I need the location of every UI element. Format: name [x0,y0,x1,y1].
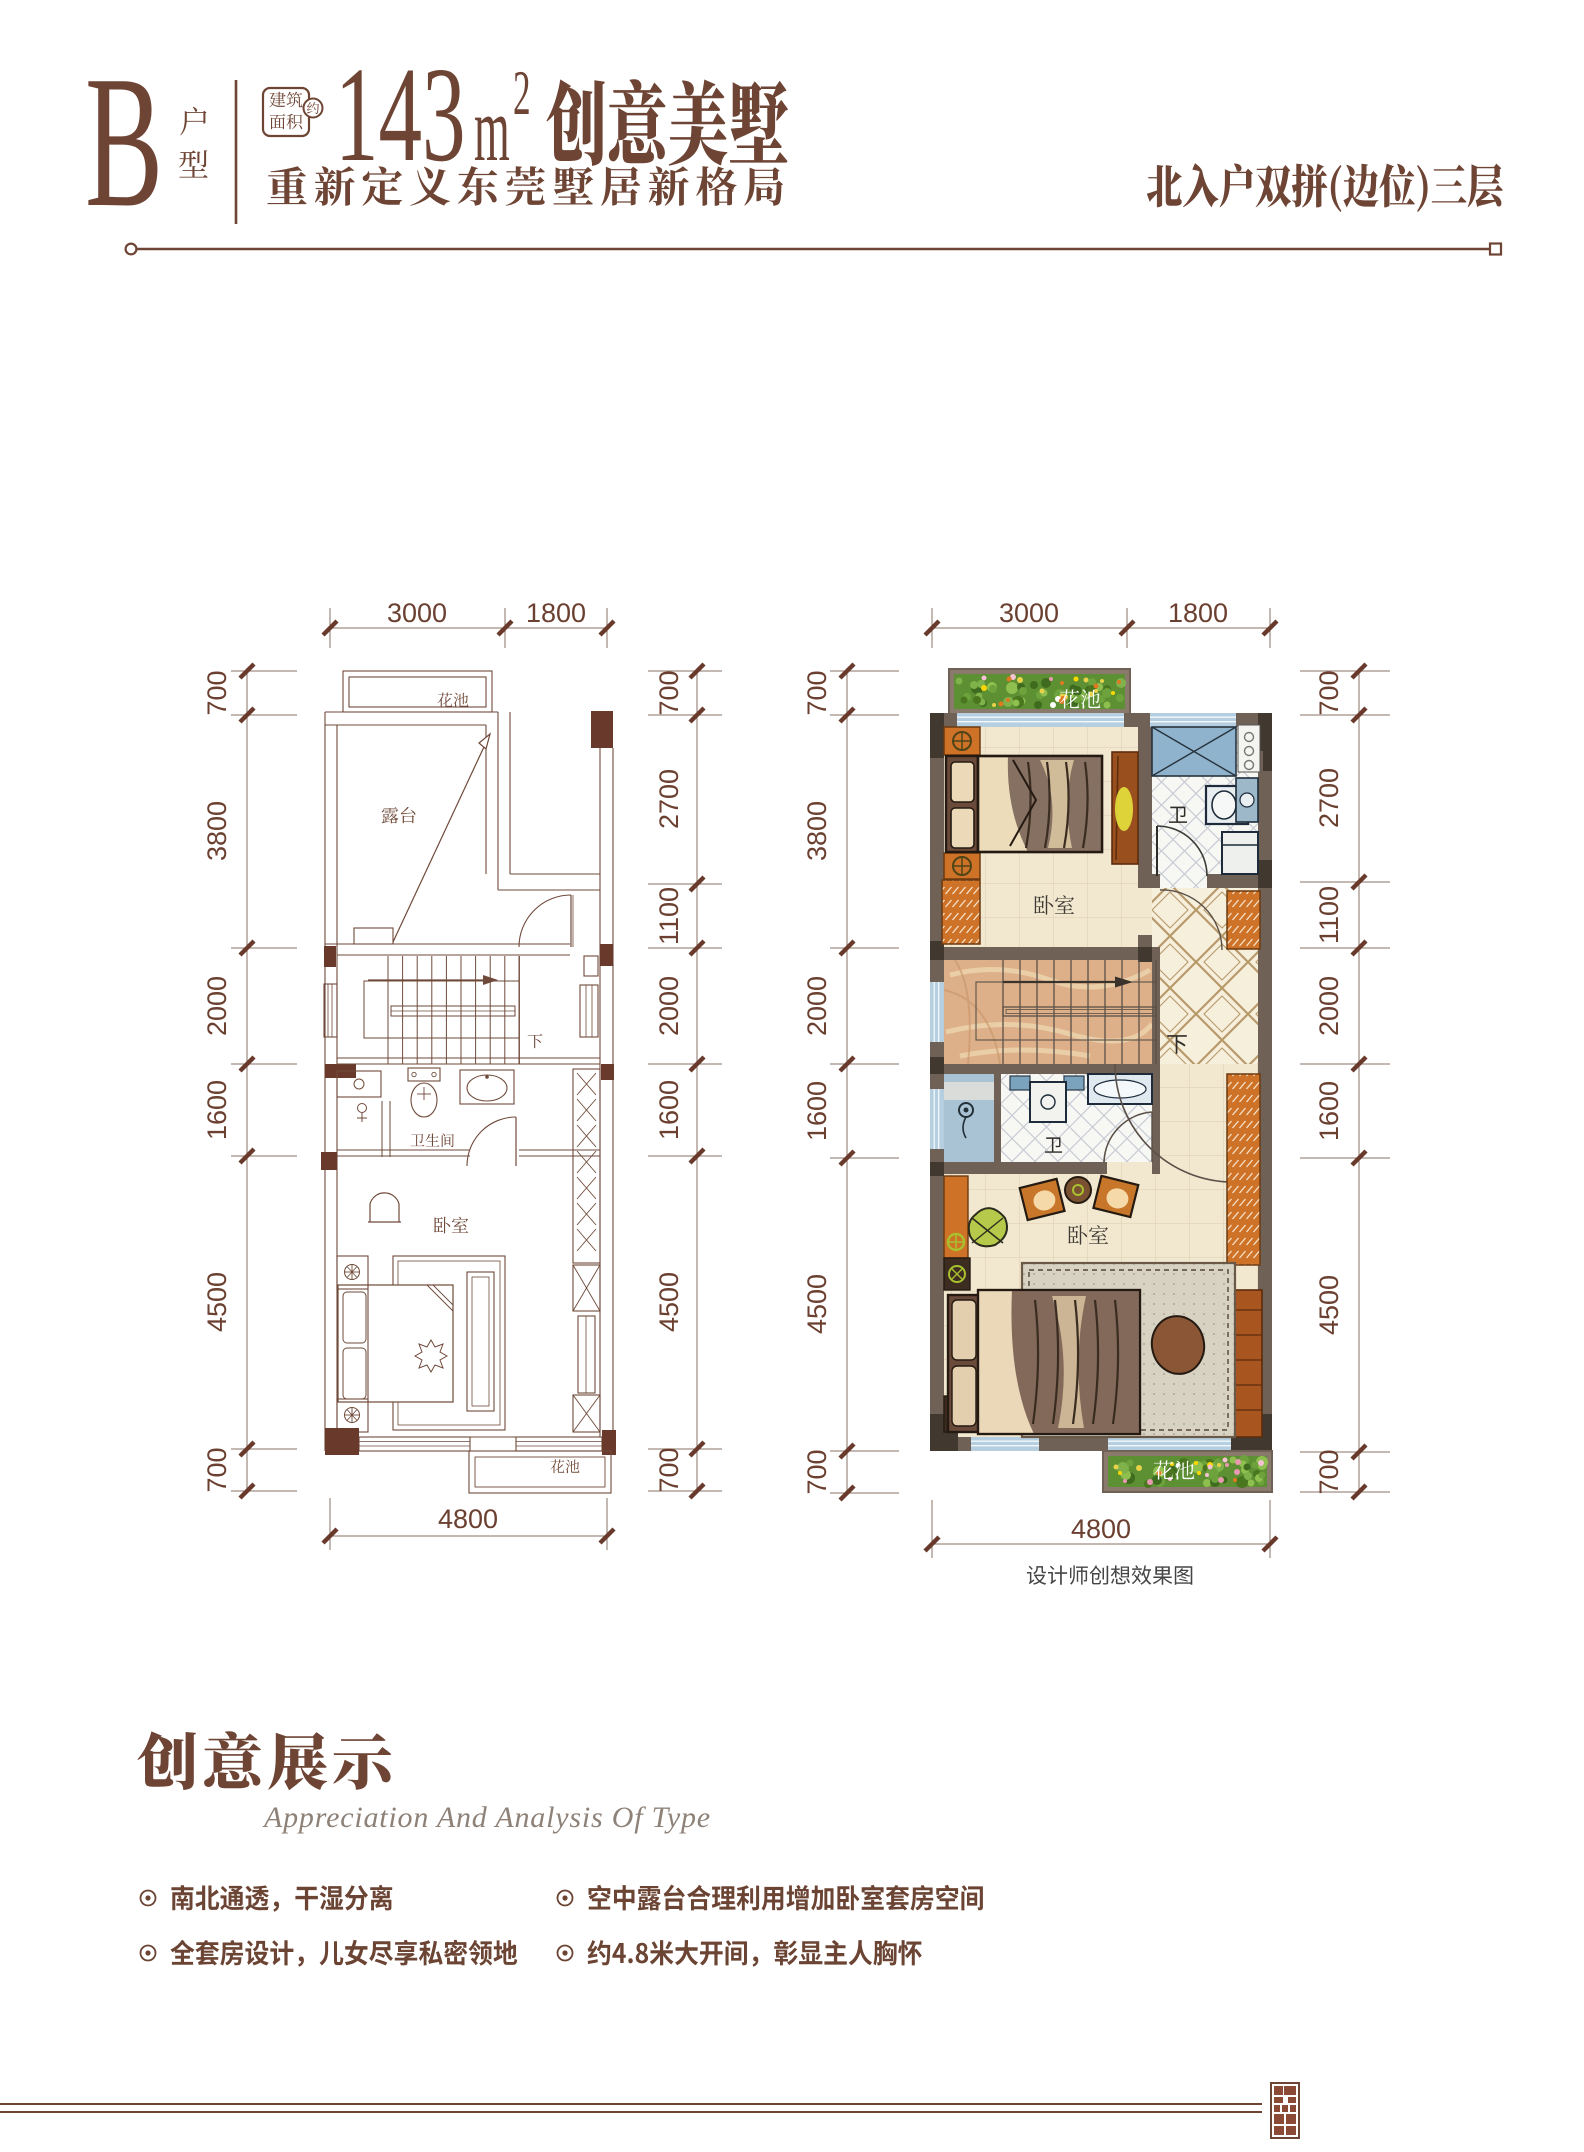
svg-text:2000: 2000 [202,976,232,1036]
svg-text:3800: 3800 [202,801,232,861]
svg-text:1800: 1800 [1168,598,1228,628]
svg-text:2700: 2700 [654,769,684,829]
svg-text:4800: 4800 [1071,1514,1131,1544]
svg-text:143: 143 [335,39,466,190]
svg-text:700: 700 [1314,670,1344,715]
svg-text:4800: 4800 [438,1504,498,1534]
svg-text:4500: 4500 [802,1274,832,1334]
svg-text:3800: 3800 [802,801,832,861]
svg-text:2000: 2000 [654,976,684,1036]
svg-text:4500: 4500 [1314,1275,1344,1335]
svg-text:2000: 2000 [1314,976,1344,1036]
svg-text:2: 2 [513,58,531,129]
svg-text:700: 700 [202,670,232,715]
svg-text:700: 700 [802,670,832,715]
svg-text:1100: 1100 [1314,886,1344,944]
svg-text:700: 700 [1314,1449,1344,1494]
svg-text:1800: 1800 [526,598,586,628]
svg-text:1600: 1600 [654,1080,684,1140]
svg-text:700: 700 [802,1449,832,1494]
svg-text:2000: 2000 [802,976,832,1036]
svg-text:2700: 2700 [1314,768,1344,828]
svg-text:4500: 4500 [202,1272,232,1332]
svg-text:1600: 1600 [202,1080,232,1140]
svg-text:m: m [474,78,510,180]
svg-text:700: 700 [654,670,684,715]
svg-text:3000: 3000 [387,598,447,628]
svg-text:4500: 4500 [654,1272,684,1332]
svg-text:700: 700 [202,1447,232,1492]
svg-text:1100: 1100 [654,887,684,945]
svg-text:1600: 1600 [802,1081,832,1141]
svg-text:1600: 1600 [1314,1081,1344,1141]
svg-text:700: 700 [654,1447,684,1492]
svg-text:Appreciation And Analysis Of T: Appreciation And Analysis Of Type [262,1801,711,1834]
svg-text:B: B [85,38,163,247]
svg-text:3000: 3000 [999,598,1059,628]
